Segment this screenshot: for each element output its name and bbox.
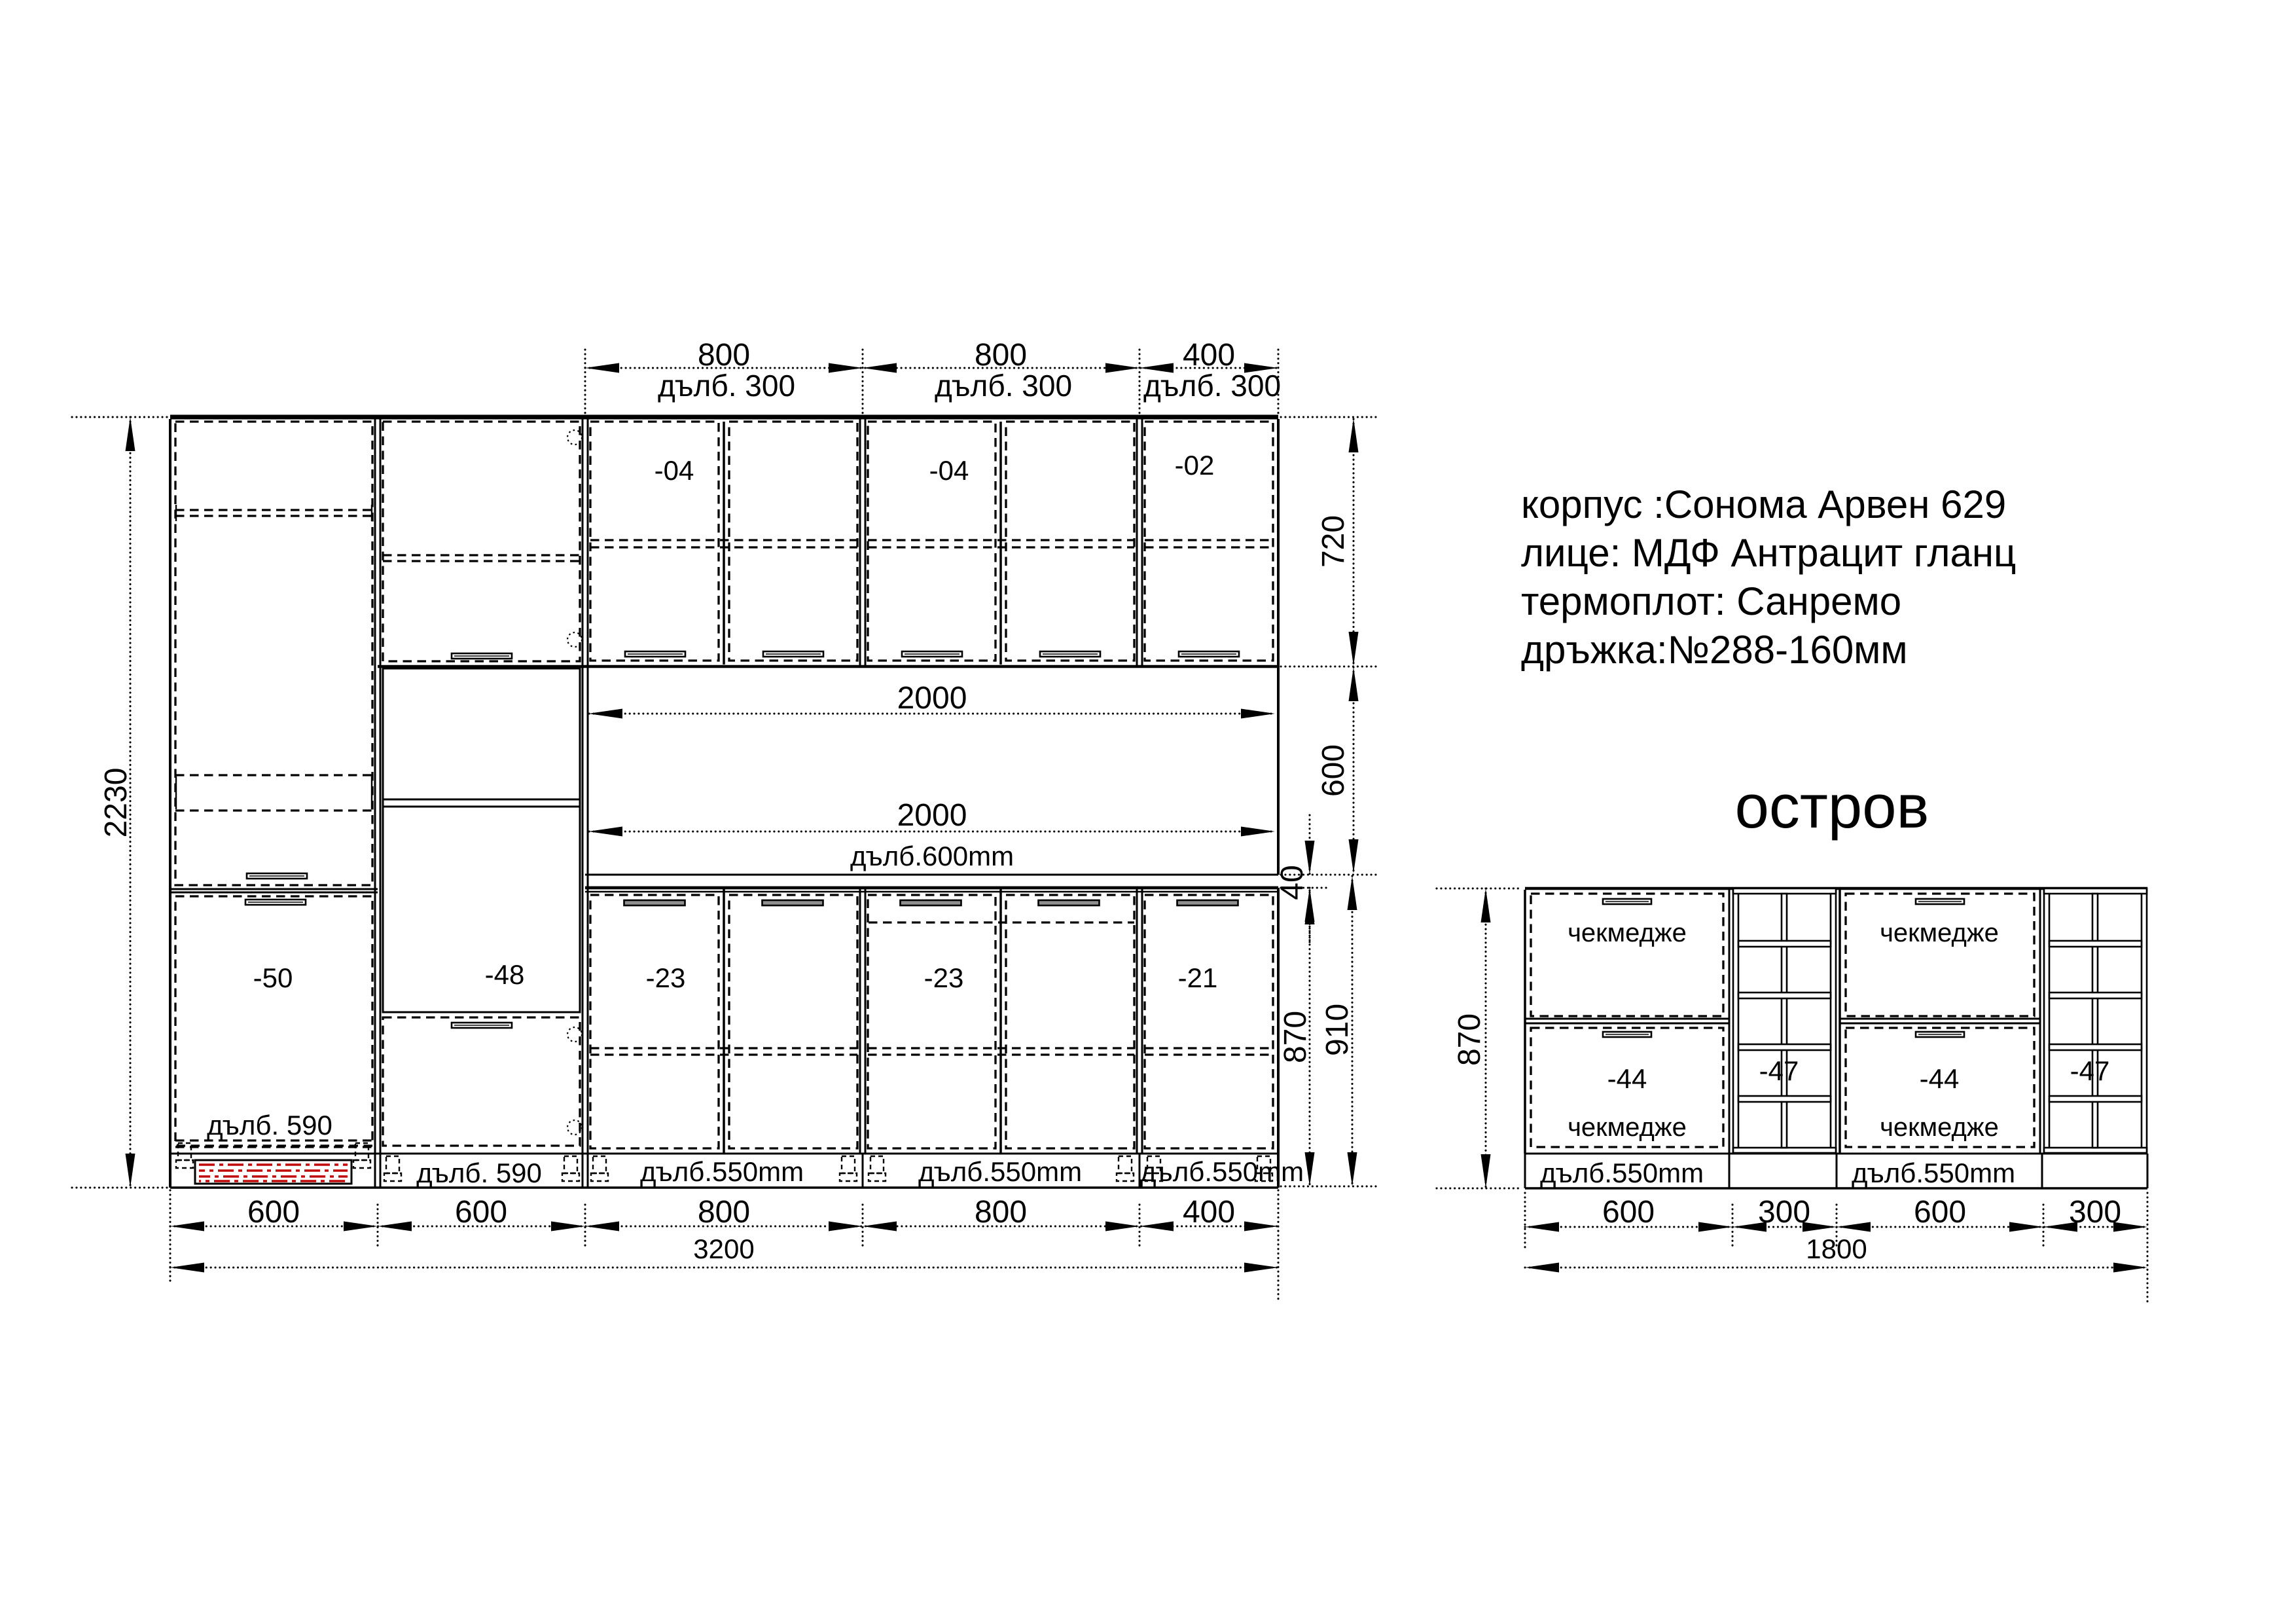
svg-text:дълб. 300: дълб. 300: [1143, 369, 1281, 403]
svg-text:-02: -02: [1175, 450, 1215, 481]
svg-text:600: 600: [1602, 1195, 1655, 1230]
svg-text:дълб. 590: дълб. 590: [207, 1110, 332, 1140]
svg-text:-04: -04: [929, 455, 969, 486]
svg-text:-21: -21: [1178, 962, 1218, 993]
svg-text:-23: -23: [646, 962, 686, 993]
svg-text:чекмедже: чекмедже: [1568, 1113, 1687, 1142]
svg-text:остров: остров: [1735, 772, 1929, 841]
svg-text:-47: -47: [2070, 1055, 2110, 1086]
svg-text:800: 800: [698, 338, 750, 373]
svg-text:40: 40: [1275, 865, 1310, 900]
svg-text:800: 800: [975, 1195, 1027, 1230]
svg-text:-23: -23: [924, 962, 964, 993]
svg-text:600: 600: [1316, 744, 1351, 797]
svg-text:-04: -04: [655, 455, 694, 486]
svg-text:3200: 3200: [693, 1233, 754, 1264]
svg-text:870: 870: [1452, 1013, 1487, 1066]
svg-text:чекмедже: чекмедже: [1880, 919, 1999, 947]
svg-text:дълб. 590: дълб. 590: [416, 1158, 542, 1188]
svg-text:2000: 2000: [897, 681, 967, 716]
svg-text:дълб.550mm: дълб.550mm: [918, 1156, 1082, 1187]
svg-text:300: 300: [1758, 1195, 1810, 1230]
svg-text:2000: 2000: [897, 798, 967, 833]
svg-text:дълб. 300: дълб. 300: [658, 369, 795, 403]
svg-text:800: 800: [698, 1195, 750, 1230]
svg-text:910: 910: [1320, 1004, 1355, 1056]
svg-text:2230: 2230: [99, 768, 134, 838]
svg-text:400: 400: [1183, 338, 1235, 373]
svg-text:300: 300: [2069, 1195, 2121, 1230]
svg-text:дълб.600mm: дълб.600mm: [850, 841, 1014, 871]
svg-text:870: 870: [1278, 1011, 1313, 1063]
svg-text:термоплот: Санремо: термоплот: Санремо: [1521, 579, 1901, 623]
svg-text:дръжка:№288-160мм: дръжка:№288-160мм: [1521, 628, 1908, 672]
svg-text:дълб.550mm: дълб.550mm: [1540, 1158, 1704, 1188]
svg-text:чекмедже: чекмедже: [1568, 919, 1687, 947]
svg-text:лице: МДФ Антрацит гланц: лице: МДФ Антрацит гланц: [1521, 531, 2016, 575]
svg-text:800: 800: [975, 338, 1027, 373]
svg-text:-50: -50: [253, 962, 293, 993]
svg-text:-48: -48: [485, 959, 525, 990]
svg-text:-47: -47: [1759, 1055, 1799, 1086]
svg-text:720: 720: [1316, 515, 1351, 568]
svg-text:дълб. 300: дълб. 300: [935, 369, 1072, 403]
svg-text:дълб.550mm: дълб.550mm: [640, 1156, 804, 1187]
svg-text:-44: -44: [1920, 1063, 1960, 1094]
svg-text:дълб.550mm: дълб.550mm: [1140, 1156, 1304, 1187]
svg-text:600: 600: [455, 1195, 507, 1230]
svg-text:600: 600: [1914, 1195, 1966, 1230]
svg-text:корпус :Сонома Арвен 629: корпус :Сонома Арвен 629: [1521, 483, 2006, 526]
svg-text:600: 600: [247, 1195, 300, 1230]
svg-text:400: 400: [1183, 1195, 1235, 1230]
svg-text:дълб.550mm: дълб.550mm: [1852, 1158, 2015, 1188]
svg-text:-44: -44: [1607, 1063, 1647, 1094]
svg-text:чекмедже: чекмедже: [1880, 1113, 1999, 1142]
svg-text:1800: 1800: [1806, 1233, 1867, 1264]
